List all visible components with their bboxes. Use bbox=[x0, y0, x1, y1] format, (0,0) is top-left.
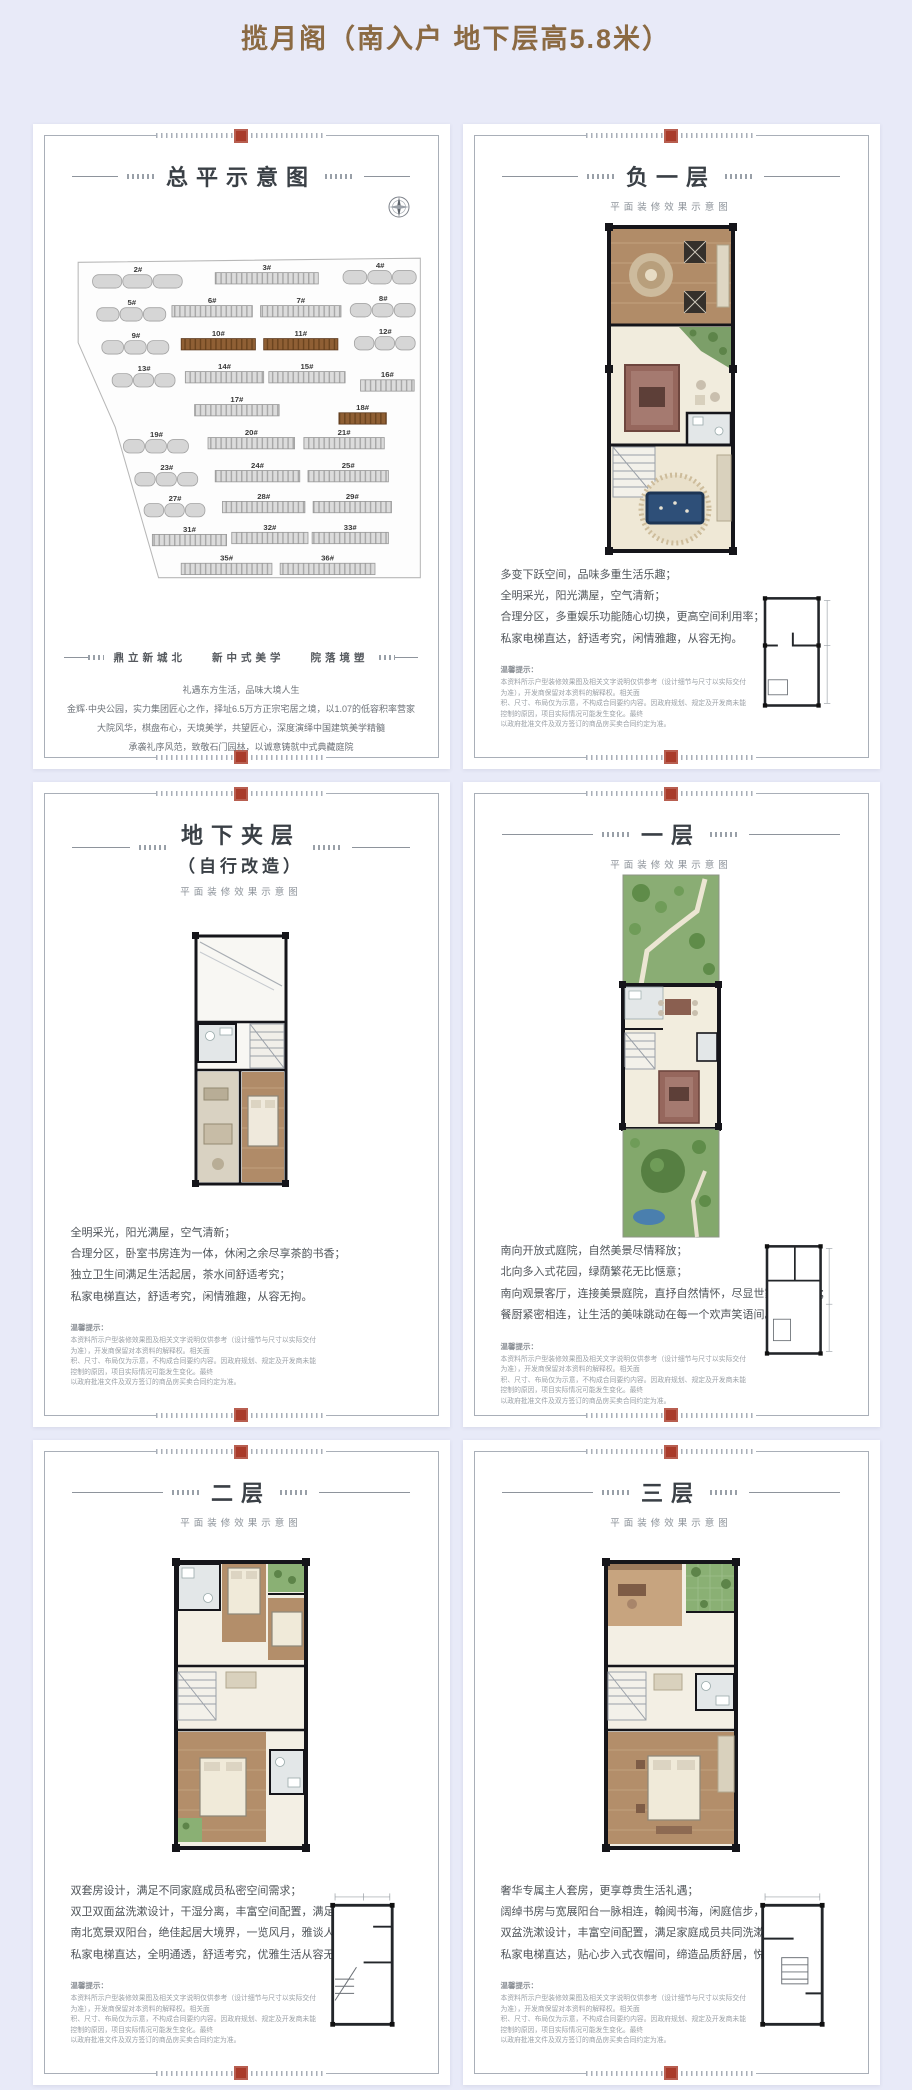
panel-title: 三层 bbox=[641, 1476, 701, 1508]
panel-title: 地下夹层 bbox=[181, 818, 301, 850]
panel-floor-3: 三层 平面装修效果示意图 bbox=[463, 1440, 880, 2085]
building bbox=[232, 533, 308, 544]
building-label: 21# bbox=[338, 428, 352, 437]
building-label: 13# bbox=[138, 364, 152, 373]
building bbox=[143, 308, 165, 321]
building bbox=[112, 374, 132, 387]
panel-subtitle: 平面装修效果示意图 bbox=[610, 857, 732, 871]
building bbox=[312, 533, 388, 544]
flourish-line bbox=[72, 1492, 163, 1493]
flourish-line bbox=[72, 176, 118, 177]
feature-line: 合理分区，卧室书房连为一体，休闲之余尽享茶韵书香； bbox=[71, 1244, 412, 1265]
panel-title-row: 三层 bbox=[502, 1476, 840, 1508]
panel-floor-2: 二层 平面装修效果示意图 bbox=[33, 1440, 450, 2085]
outline-plan-diagram bbox=[746, 1891, 846, 2041]
building bbox=[125, 341, 147, 354]
floor-plan-floor-2 bbox=[146, 1554, 336, 1856]
flourish-line bbox=[749, 834, 840, 835]
flourish-ornament bbox=[280, 1490, 310, 1495]
building bbox=[145, 440, 166, 453]
building-highlighted bbox=[264, 339, 338, 350]
feature-list: 全明采光，阳光满屋，空气清新；合理分区，卧室书房连为一体，休闲之余尽享茶韵书香；… bbox=[71, 1223, 412, 1309]
building bbox=[177, 473, 197, 486]
slogan-phrase: 院落境塑 bbox=[311, 650, 369, 665]
panel-title-row: 二层 bbox=[72, 1476, 410, 1508]
building-label: 12# bbox=[379, 327, 393, 336]
outline-plan-diagram bbox=[752, 1231, 842, 1371]
building-label: 32# bbox=[263, 523, 277, 532]
panel-basement-1: 负一层 平面装修效果示意图 bbox=[463, 124, 880, 769]
disclaimer-heading: 温馨提示： bbox=[501, 1341, 747, 1352]
building bbox=[102, 341, 124, 354]
site-description: 礼遇东方生活，品味大境人生金辉·中央公园，实力集团匠心之作，择址6.5万方正宗宅… bbox=[67, 681, 415, 757]
building bbox=[133, 374, 153, 387]
flourish-ornament bbox=[587, 174, 617, 179]
panel-title: 一层 bbox=[641, 818, 701, 850]
disclaimer-heading: 温馨提示： bbox=[501, 664, 747, 675]
building bbox=[93, 275, 122, 288]
building-highlighted bbox=[181, 339, 255, 350]
flourish-line bbox=[502, 176, 578, 177]
building-label: 9# bbox=[132, 331, 141, 340]
building-label: 33# bbox=[344, 523, 358, 532]
flourish-ornament bbox=[602, 1490, 632, 1495]
building-label: 25# bbox=[342, 461, 356, 470]
building-label: 7# bbox=[296, 296, 305, 305]
building bbox=[354, 337, 374, 350]
flourish-line bbox=[319, 1492, 410, 1493]
panel-title: 负一层 bbox=[626, 160, 716, 192]
panel-subtitle: 平面装修效果示意图 bbox=[180, 884, 302, 898]
flourish-ornament bbox=[172, 1490, 202, 1495]
building bbox=[393, 271, 417, 284]
building bbox=[185, 372, 263, 383]
building bbox=[156, 473, 176, 486]
building bbox=[350, 304, 371, 317]
flourish-ornament bbox=[313, 845, 343, 850]
floor-plan-floor-3 bbox=[576, 1554, 766, 1856]
building-label: 11# bbox=[295, 329, 308, 338]
disclaimer: 温馨提示： 本资料所示户型装修效果图及相关文字说明仅供参考（设计细节与尺寸以实际… bbox=[501, 664, 747, 731]
panel-title-row: 负一层 bbox=[502, 160, 840, 192]
panel-title-row: 一层 bbox=[502, 818, 840, 850]
building-label: 20# bbox=[245, 428, 259, 437]
flourish-line bbox=[72, 847, 130, 848]
flourish-line bbox=[749, 1492, 840, 1493]
building bbox=[261, 306, 341, 317]
disclaimer: 温馨提示： 本资料所示户型装修效果图及相关文字说明仅供参考（设计细节与尺寸以实际… bbox=[501, 1341, 747, 1408]
building bbox=[123, 275, 152, 288]
building bbox=[185, 504, 205, 517]
panel-title-row: 总平示意图 bbox=[72, 160, 410, 192]
flourish-line bbox=[352, 847, 410, 848]
disclaimer-line: 以政府批准文件及双方签订的商品房买卖合同约定为准。 bbox=[501, 720, 747, 731]
building bbox=[308, 471, 388, 482]
building-label: 16# bbox=[381, 370, 395, 379]
slogan-phrase: 新中式美学 bbox=[212, 650, 285, 665]
building-label: 5# bbox=[127, 298, 136, 307]
building-highlighted bbox=[339, 413, 386, 424]
slogan-phrases: 鼎立新城北新中式美学院落境塑 bbox=[114, 650, 369, 665]
disclaimer-heading: 温馨提示： bbox=[501, 1980, 747, 1991]
feature-line: 全明采光，阳光满屋，空气清新； bbox=[71, 1223, 412, 1244]
building bbox=[124, 440, 145, 453]
building-label: 19# bbox=[150, 430, 164, 439]
building bbox=[153, 275, 182, 288]
building bbox=[280, 563, 375, 574]
disclaimer-line: 以政府批准文件及双方签订的商品房买卖合同约定为准。 bbox=[71, 1378, 317, 1389]
disclaimer-line: 以政府批准文件及双方签订的商品房买卖合同约定为准。 bbox=[501, 2036, 747, 2047]
flourish-line bbox=[64, 657, 87, 658]
building bbox=[97, 308, 119, 321]
disclaimer-line: 本资料所示户型装修效果图及相关文字说明仅供参考（设计细节与尺寸以实际交付为准），… bbox=[71, 1336, 317, 1357]
building-label: 6# bbox=[208, 296, 217, 305]
building bbox=[215, 273, 318, 284]
panel-floor-1: 一层 平面装修效果示意图 bbox=[463, 782, 880, 1427]
flourish-ornament bbox=[602, 832, 632, 837]
panel-title: 二层 bbox=[211, 1476, 271, 1508]
disclaimer-heading: 温馨提示： bbox=[71, 1322, 317, 1333]
building-label: 15# bbox=[301, 362, 315, 371]
panel-title-secondary: （自行改造） bbox=[178, 852, 304, 877]
disclaimer-line: 本资料所示户型装修效果图及相关文字说明仅供参考（设计细节与尺寸以实际交付为准），… bbox=[501, 678, 747, 699]
description-line: 承袭礼序风范，致敬石门园林，以诚意铸就中式典藏庭院 bbox=[67, 738, 415, 757]
building bbox=[372, 304, 393, 317]
building bbox=[269, 372, 345, 383]
building-label: 17# bbox=[230, 395, 244, 404]
disclaimer: 温馨提示： 本资料所示户型装修效果图及相关文字说明仅供参考（设计细节与尺寸以实际… bbox=[71, 1980, 317, 2047]
building bbox=[215, 471, 300, 482]
disclaimer-line: 以政府批准文件及双方签订的商品房买卖合同约定为准。 bbox=[71, 2036, 317, 2047]
disclaimer-heading: 温馨提示： bbox=[71, 1980, 317, 1991]
building-label: 2# bbox=[134, 265, 143, 274]
flourish-ornament bbox=[725, 174, 755, 179]
flourish-ornament bbox=[88, 655, 104, 660]
building bbox=[304, 438, 384, 449]
building bbox=[155, 374, 175, 387]
disclaimer-line: 积、尺寸、布局仅为示意，不构成合同要约内容。因政府规划、规定及开发商未能控制的原… bbox=[71, 1357, 317, 1378]
floor-plan-area bbox=[475, 1529, 868, 1881]
flourish-line bbox=[502, 1492, 593, 1493]
building-label: 36# bbox=[321, 554, 335, 563]
flourish-line bbox=[364, 176, 410, 177]
flourish-ornament bbox=[379, 655, 395, 660]
panel-subtitle: 平面装修效果示意图 bbox=[610, 1515, 732, 1529]
building-label: 4# bbox=[376, 261, 385, 270]
building bbox=[167, 440, 188, 453]
panel-subtitle: 平面装修效果示意图 bbox=[180, 1515, 302, 1529]
page-header: 揽月阁（南入户 地下层高5.8米） bbox=[0, 0, 912, 72]
floor-plan-area bbox=[45, 1529, 438, 1881]
building bbox=[208, 438, 295, 449]
disclaimer-line: 积、尺寸、布局仅为示意，不构成合同要约内容。因政府规划、规定及开发商未能控制的原… bbox=[71, 2015, 317, 2036]
flourish-ornament bbox=[325, 174, 355, 179]
disclaimer: 温馨提示： 本资料所示户型装修效果图及相关文字说明仅供参考（设计细节与尺寸以实际… bbox=[501, 1980, 747, 2047]
floor-plan-mezzanine bbox=[166, 928, 316, 1192]
floor-plan-area bbox=[475, 213, 868, 565]
disclaimer-line: 积、尺寸、布局仅为示意，不构成合同要约内容。因政府规划、规定及开发商未能控制的原… bbox=[501, 2015, 747, 2036]
disclaimer-line: 积、尺寸、布局仅为示意，不构成合同要约内容。因政府规划、规定及开发商未能控制的原… bbox=[501, 1376, 747, 1397]
compass-icon bbox=[386, 194, 412, 220]
floor-plan-area bbox=[45, 898, 438, 1223]
description-line: 金辉·中央公园，实力集团匠心之作，择址6.5万方正宗宅居之境，以1.07的低容积… bbox=[67, 700, 415, 719]
panel-title: 总平示意图 bbox=[166, 160, 316, 192]
panel-site-plan: 总平示意图 bbox=[33, 124, 450, 769]
building bbox=[152, 535, 226, 546]
building-label: 14# bbox=[218, 362, 232, 371]
building-label: 8# bbox=[379, 294, 388, 303]
description-line: 大院风华，棋盘布心，天境美学，共望匠心，深度演绎中国建筑美学精髓 bbox=[67, 719, 415, 738]
site-plan-map: 2#3#4#5#6#7#8#9#10#11#12#13#14#15#16#17#… bbox=[55, 252, 427, 588]
building bbox=[172, 306, 252, 317]
outline-plan-diagram bbox=[316, 1891, 416, 2041]
disclaimer-line: 本资料所示户型装修效果图及相关文字说明仅供参考（设计细节与尺寸以实际交付为准），… bbox=[501, 1355, 747, 1376]
floor-plan-area bbox=[475, 871, 868, 1241]
building bbox=[195, 405, 280, 416]
flourish-ornament bbox=[710, 1490, 740, 1495]
building bbox=[135, 473, 155, 486]
building-label: 27# bbox=[169, 494, 183, 503]
panel-title-row: 地下夹层 （自行改造） bbox=[72, 818, 410, 877]
page-title: 揽月阁（南入户 地下层高5.8米） bbox=[241, 17, 671, 56]
building bbox=[120, 308, 142, 321]
building bbox=[396, 337, 416, 350]
building bbox=[144, 504, 164, 517]
building-label: 24# bbox=[251, 461, 265, 470]
building bbox=[361, 380, 415, 391]
building bbox=[181, 563, 272, 574]
building bbox=[368, 271, 392, 284]
flourish-line bbox=[395, 657, 418, 658]
building bbox=[147, 341, 169, 354]
building-label: 18# bbox=[356, 403, 370, 412]
building-label: 28# bbox=[257, 492, 271, 501]
disclaimer-line: 本资料所示户型装修效果图及相关文字说明仅供参考（设计细节与尺寸以实际交付为准），… bbox=[501, 1994, 747, 2015]
disclaimer: 温馨提示： 本资料所示户型装修效果图及相关文字说明仅供参考（设计细节与尺寸以实际… bbox=[71, 1322, 317, 1389]
panel-grid: 总平示意图 bbox=[0, 124, 912, 2085]
building-label: 31# bbox=[183, 525, 197, 534]
building-label: 35# bbox=[220, 554, 234, 563]
flourish-ornament bbox=[710, 832, 740, 837]
floor-plan-floor-1 bbox=[601, 871, 741, 1241]
outline-plan-diagram bbox=[750, 583, 840, 723]
panel-mezzanine: 地下夹层 （自行改造） 平面装修效果示意图 bbox=[33, 782, 450, 1427]
building-label: 23# bbox=[160, 463, 174, 472]
panel-subtitle: 平面装修效果示意图 bbox=[610, 199, 732, 213]
disclaimer-line: 以政府批准文件及双方签订的商品房买卖合同约定为准。 bbox=[501, 1397, 747, 1408]
building-label: 3# bbox=[262, 263, 271, 272]
floor-plan-basement-1 bbox=[581, 219, 761, 559]
disclaimer-line: 积、尺寸、布局仅为示意，不构成合同要约内容。因政府规划、规定及开发商未能控制的原… bbox=[501, 699, 747, 720]
flourish-ornament bbox=[139, 845, 169, 850]
flourish-line bbox=[502, 834, 593, 835]
building bbox=[165, 504, 185, 517]
site-plan-area: 2#3#4#5#6#7#8#9#10#11#12#13#14#15#16#17#… bbox=[45, 192, 438, 648]
building bbox=[394, 304, 415, 317]
flourish-ornament bbox=[127, 174, 157, 179]
flourish-line bbox=[764, 176, 840, 177]
building bbox=[375, 337, 395, 350]
disclaimer-line: 本资料所示户型装修效果图及相关文字说明仅供参考（设计细节与尺寸以实际交付为准），… bbox=[71, 1994, 317, 2015]
feature-line: 独立卫生间满足生活起居，茶水间舒适考究； bbox=[71, 1265, 412, 1286]
building bbox=[313, 502, 391, 513]
building-label: 10# bbox=[212, 329, 226, 338]
slogan-row: 鼎立新城北新中式美学院落境塑 bbox=[64, 650, 418, 665]
feature-line: 私家电梯直达，舒适考究，闲情雅趣，从容无拘。 bbox=[71, 1287, 412, 1308]
description-line: 礼遇东方生活，品味大境人生 bbox=[67, 681, 415, 700]
building bbox=[222, 502, 304, 513]
building-label: 29# bbox=[346, 492, 360, 501]
building bbox=[343, 271, 367, 284]
slogan-phrase: 鼎立新城北 bbox=[114, 650, 187, 665]
